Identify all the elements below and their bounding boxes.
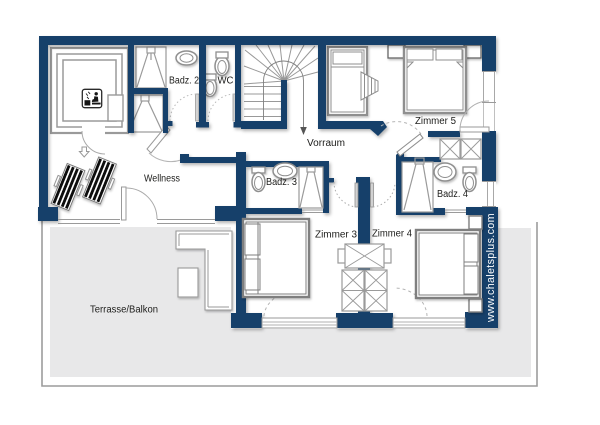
svg-text:Badz. 3: Badz. 3	[266, 177, 297, 188]
svg-text:Vorraum: Vorraum	[307, 138, 345, 149]
svg-text:Badz. 2: Badz. 2	[169, 76, 199, 87]
svg-text:Zimmer 5: Zimmer 5	[415, 116, 456, 127]
svg-text:Badz. 4: Badz. 4	[437, 189, 468, 200]
svg-text:Terrasse/Balkon: Terrasse/Balkon	[90, 305, 158, 316]
svg-text:Wellness: Wellness	[144, 174, 180, 185]
svg-text:Zimmer 4: Zimmer 4	[372, 229, 412, 240]
svg-text:WC: WC	[218, 76, 234, 87]
svg-text:www.chaletsplus.com: www.chaletsplus.com	[485, 213, 497, 323]
svg-text:Zimmer 3: Zimmer 3	[315, 230, 357, 241]
